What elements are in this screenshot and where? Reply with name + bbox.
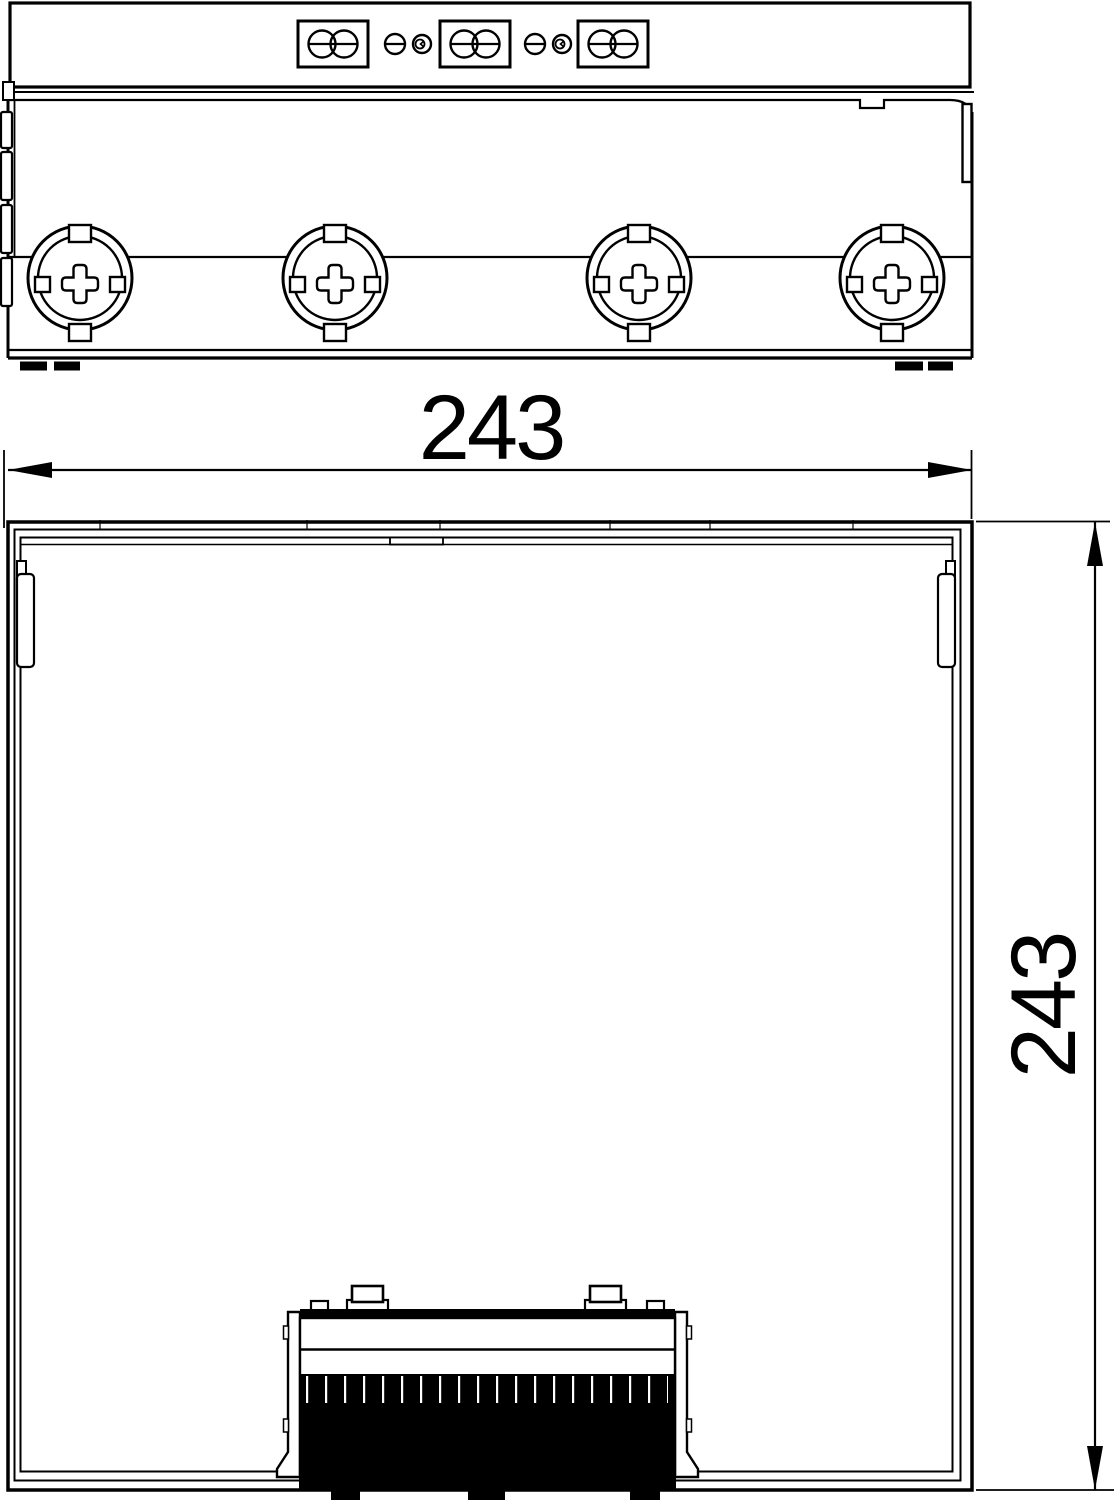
screw-2 bbox=[283, 225, 387, 341]
width-dimension-label: 243 bbox=[419, 377, 564, 479]
screw-1 bbox=[28, 225, 132, 341]
cassette-body bbox=[1, 82, 972, 371]
width-arrow-right bbox=[928, 462, 972, 478]
outlet-foot-3 bbox=[630, 1490, 660, 1500]
height-dimension-label: 243 bbox=[993, 934, 1095, 1079]
technical-drawing: 243 bbox=[0, 0, 1114, 1500]
bracket-right-notch-2 bbox=[687, 1419, 692, 1432]
right-hinge-bar bbox=[963, 104, 972, 182]
left-clip-4 bbox=[1, 258, 12, 306]
left-clip-1 bbox=[1, 112, 12, 148]
right-retaining-clip bbox=[938, 574, 955, 667]
tab-right bbox=[590, 1286, 621, 1302]
bracket-left-notch-1 bbox=[284, 1326, 289, 1339]
foot-left-2 bbox=[54, 362, 80, 371]
plan-view bbox=[8, 520, 972, 1500]
foot-left-1 bbox=[20, 362, 47, 371]
screw-3 bbox=[587, 225, 691, 341]
foot-right-1 bbox=[895, 362, 923, 371]
tab-left bbox=[352, 1286, 383, 1302]
knockout-rect-1 bbox=[298, 21, 368, 67]
brush-strip bbox=[299, 1374, 676, 1490]
bracket-left-notch-2 bbox=[284, 1419, 289, 1432]
height-arrow-bottom bbox=[1087, 1446, 1103, 1490]
left-clip-0 bbox=[3, 82, 14, 100]
left-clip-3 bbox=[1, 205, 12, 253]
outlet-foot-1 bbox=[331, 1490, 360, 1500]
band-bottom-line bbox=[8, 100, 972, 114]
knockout-row bbox=[298, 21, 648, 67]
bracket-right-notch-1 bbox=[687, 1326, 692, 1339]
height-arrow-top bbox=[1087, 522, 1103, 566]
width-dimension: 243 bbox=[4, 377, 972, 528]
foot-right-2 bbox=[928, 362, 953, 371]
knockout-rect-2 bbox=[440, 21, 510, 67]
outlet-top-bar bbox=[300, 1309, 675, 1318]
width-arrow-left bbox=[8, 462, 52, 478]
screw-row bbox=[28, 225, 944, 341]
left-clip-2 bbox=[1, 152, 12, 200]
technical-drawing-canvas: 243 bbox=[0, 0, 1114, 1500]
brush-outlet bbox=[277, 1286, 698, 1500]
left-retaining-clip bbox=[17, 574, 34, 667]
frame-band bbox=[8, 92, 974, 114]
screw-4 bbox=[840, 225, 944, 341]
plan-top-latch bbox=[390, 538, 443, 545]
height-dimension: 243 bbox=[976, 522, 1114, 1491]
outlet-foot-2 bbox=[468, 1490, 505, 1500]
knockout-rect-3 bbox=[578, 21, 648, 67]
side-view bbox=[1, 3, 974, 371]
